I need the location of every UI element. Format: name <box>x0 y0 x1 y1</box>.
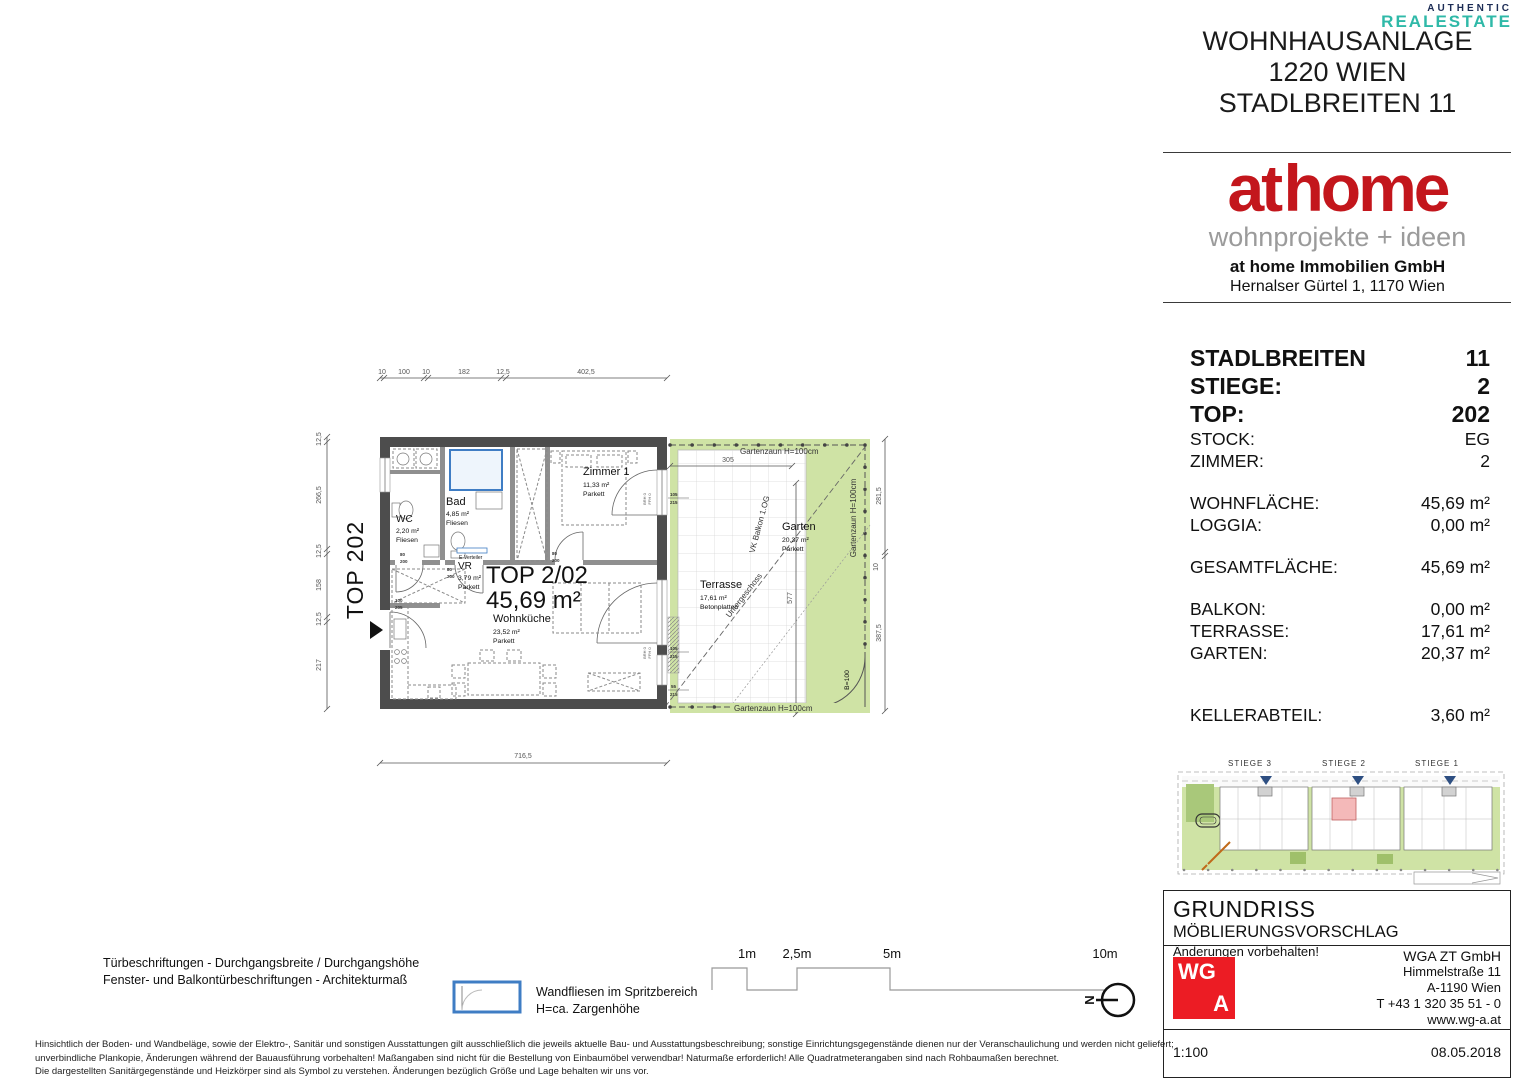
wga-city: A-1190 Wien <box>1377 980 1501 996</box>
z1-door-h: 200 <box>552 558 560 563</box>
legend-door-note1: Türbeschriftungen - Durchgangsbreite / D… <box>103 955 419 972</box>
shower <box>450 450 502 490</box>
wc-door-h: 200 <box>400 559 408 564</box>
win3-h: 215 <box>670 692 678 697</box>
room-wc-area: 2,20 m² <box>396 528 420 535</box>
unit-tag: TOP 202 <box>342 521 368 619</box>
info-value: 11 <box>1466 345 1490 372</box>
athome-company: at home Immobilien GmbH <box>1163 257 1512 277</box>
plan-sheet: 10 100 10 182 12,5 402,5 12,5 266,5 12,5… <box>0 0 1527 1080</box>
siteplan-highlighted-unit <box>1332 798 1356 820</box>
dim-left-4: 12,5 <box>316 612 323 626</box>
room-bad-area: 4,85 m² <box>446 511 470 518</box>
info-value: 0,00 m² <box>1431 515 1490 536</box>
info-value: 0,00 m² <box>1431 599 1490 620</box>
info-value: 202 <box>1452 401 1490 428</box>
titleblock-header: GRUNDRISS MÖBLIERUNGSVORSCHLAG Änderunge… <box>1164 891 1510 946</box>
win1-w: 105 <box>670 492 678 497</box>
info-value: 45,69 m² <box>1421 557 1490 578</box>
info-label: GESAMTFLÄCHE: <box>1190 557 1338 578</box>
info-value: 17,61 m² <box>1421 621 1490 642</box>
info-label: KELLERABTEIL: <box>1190 705 1322 726</box>
terrace-step <box>668 617 679 673</box>
legend-door-notes: Türbeschriftungen - Durchgangsbreite / D… <box>103 955 419 989</box>
info-value: 20,37 m² <box>1421 643 1490 664</box>
fence-label-right: Gartenzaun H=100cm <box>849 478 858 557</box>
scale-5m: 5m <box>883 946 901 961</box>
info-value: 3,60 m² <box>1431 705 1490 726</box>
drawing-date: 08.05.2018 <box>1431 1044 1501 1060</box>
bad-door-w: 80 <box>447 567 453 572</box>
entrance-arrow-icon <box>370 621 383 639</box>
garden-area <box>670 439 870 713</box>
info-label: TERRASSE: <box>1190 621 1289 642</box>
project-title: WOHNHAUSANLAGE 1220 WIEN STADLBREITEN 11 <box>1163 26 1512 119</box>
dim-garden-height: 577 <box>787 592 794 604</box>
legend-tile-note1: Wandfliesen im Spritzbereich <box>536 984 697 1001</box>
brand-block: at home wohnprojekte + ideen at home Imm… <box>1163 156 1512 296</box>
wga-street: Himmelstraße 11 <box>1377 964 1501 980</box>
room-zimmer1-floor: Parkett <box>583 491 605 498</box>
dim-left-0: 12,5 <box>316 432 323 446</box>
info-row: STOCK:EG <box>1190 429 1490 451</box>
wga-phone: T +43 1 320 35 51 - 0 <box>1377 996 1501 1012</box>
titleblock-subtitle: MÖBLIERUNGSVORSCHLAG <box>1173 923 1399 941</box>
dim-top-4: 12,5 <box>496 369 510 376</box>
wga-logo-top: WG <box>1178 959 1216 985</box>
wga-company: WGA ZT GmbH <box>1377 948 1501 964</box>
dim-left-1: 266,5 <box>316 486 323 504</box>
legend-tile-notes: Wandfliesen im Spritzbereich H=ca. Zarge… <box>536 984 697 1018</box>
project-title-line2: 1220 WIEN <box>1163 57 1512 88</box>
dim-right-2: 387,5 <box>876 624 883 642</box>
dim-bottom: 716,5 <box>514 753 532 760</box>
room-bad-floor: Fliesen <box>446 520 468 527</box>
fence-label-bottom: Gartenzaun H=100cm <box>734 704 813 713</box>
info-label: ZIMMER: <box>1190 451 1264 472</box>
room-vr-name: VR <box>458 561 472 572</box>
athome-address: Hernalser Gürtel 1, 1170 Wien <box>1163 277 1512 296</box>
room-wc-floor: Fliesen <box>396 537 418 544</box>
wga-logo: WG A <box>1173 957 1235 1019</box>
watermark: AUTHENTIC REALESTATE <box>1290 2 1512 28</box>
info-row: KELLERABTEIL:3,60 m² <box>1190 705 1490 727</box>
unit-info-panel: STADLBREITEN11 STIEGE:2 TOP:202 STOCK:EG… <box>1190 345 1490 727</box>
dim-left-3: 158 <box>316 579 323 591</box>
info-label: STADLBREITEN <box>1190 345 1366 372</box>
floor-plan: 10 100 10 182 12,5 402,5 12,5 266,5 12,5… <box>300 355 930 785</box>
room-terrasse-area: 17,61 m² <box>700 595 728 602</box>
room-kueche-name: Wohnküche <box>493 613 551 625</box>
disclaimer-line2: unverbindliche Plankopie, Änderungen wäh… <box>35 1052 1155 1066</box>
title-block: GRUNDRISS MÖBLIERUNGSVORSCHLAG Änderunge… <box>1163 890 1511 1078</box>
bad-door-h: 200 <box>447 574 455 579</box>
info-value: 2 <box>1477 373 1490 400</box>
titleblock-meta-row: 1:100 08.05.2018 <box>1164 1030 1510 1074</box>
dim-left-2: 12,5 <box>316 544 323 558</box>
info-label: LOGGIA: <box>1190 515 1262 536</box>
info-label: BALKON: <box>1190 599 1266 620</box>
dim-top-0: 10 <box>378 369 386 376</box>
dim-left-5: 217 <box>316 659 323 671</box>
gate-label: B=100 <box>844 670 851 690</box>
win2-w: 105 <box>670 646 678 651</box>
dim-garden-width: 305 <box>722 457 734 464</box>
scale-1m: 1m <box>738 946 756 961</box>
win1-h: 215 <box>670 500 678 505</box>
room-garten-area: 20,37 m² <box>782 537 810 544</box>
win2-ffh: FFH 0 <box>647 647 652 659</box>
wga-logo-bottom: A <box>1213 991 1229 1017</box>
z1-door-w: 80 <box>552 551 558 556</box>
legend-door-note2: Fenster- und Balkontürbeschriftungen - A… <box>103 972 419 989</box>
info-row: GESAMTFLÄCHE:45,69 m² <box>1190 557 1490 579</box>
legend-tile-note2: H=ca. Zargenhöhe <box>536 1001 697 1018</box>
info-row: TOP:202 <box>1190 401 1490 429</box>
win2-h: 215 <box>670 654 678 659</box>
room-terrasse-name: Terrasse <box>700 579 742 591</box>
win1-ffh: FFH 0 <box>647 493 652 505</box>
info-value: EG <box>1465 429 1490 450</box>
site-plan: STIEGE 3 STIEGE 2 STIEGE 1 <box>1172 756 1512 888</box>
dim-right-0: 281,5 <box>876 487 883 505</box>
drawing-scale: 1:100 <box>1173 1044 1208 1060</box>
room-vr-area: 3,79 m² <box>458 575 482 582</box>
entry-door-w: 100 <box>395 598 403 603</box>
project-title-line1: WOHNHAUSANLAGE <box>1163 26 1512 57</box>
wc-door-w: 80 <box>400 552 406 557</box>
info-row: GARTEN:20,37 m² <box>1190 643 1490 665</box>
athome-tagline: wohnprojekte + ideen <box>1163 222 1512 252</box>
siteplan-stiege2: STIEGE 2 <box>1322 759 1366 768</box>
north-letter: N <box>1082 995 1097 1004</box>
project-title-line3: STADLBREITEN 11 <box>1163 88 1512 119</box>
win3-w: 55 <box>671 684 677 689</box>
info-value: 45,69 m² <box>1421 493 1490 514</box>
info-value: 2 <box>1480 451 1490 472</box>
dim-top-3: 182 <box>458 369 470 376</box>
tile-legend-icon <box>452 980 524 1016</box>
room-bad-name: Bad <box>446 496 466 508</box>
siteplan-stiege3: STIEGE 3 <box>1228 759 1272 768</box>
disclaimer-line3: Die dargestellten Sanitärgegenstände und… <box>35 1065 1155 1079</box>
dim-right-1: 10 <box>873 563 880 571</box>
info-row: WOHNFLÄCHE:45,69 m² <box>1190 493 1490 515</box>
scale-bar: 1m 2,5m 5m 10m N <box>700 940 1150 1030</box>
unit-area: 45,69 m² <box>486 587 581 614</box>
wga-address: WGA ZT GmbH Himmelstraße 11 A-1190 Wien … <box>1377 948 1501 1028</box>
room-zimmer1-area: 11,33 m² <box>583 482 610 489</box>
info-label: TOP: <box>1190 401 1245 428</box>
room-zimmer1-name: Zimmer 1 <box>583 466 629 478</box>
dim-top-5: 402,5 <box>577 369 595 376</box>
info-row: ZIMMER:2 <box>1190 451 1490 473</box>
disclaimer: Hinsichtlich der Boden- und Wandbeläge, … <box>35 1038 1155 1079</box>
scale-10m: 10m <box>1092 946 1117 961</box>
disclaimer-line1: Hinsichtlich der Boden- und Wandbeläge, … <box>35 1038 1155 1052</box>
info-row: TERRASSE:17,61 m² <box>1190 621 1490 643</box>
room-garten-floor: Parkett <box>782 546 804 553</box>
entry-door-h: 205 <box>395 605 403 610</box>
room-wc-name: WC <box>396 514 413 525</box>
room-vr-floor: Parkett <box>458 584 480 591</box>
athome-logo: at home <box>1163 156 1512 220</box>
info-row: BALKON:0,00 m² <box>1190 599 1490 621</box>
dim-top-1: 100 <box>398 369 410 376</box>
info-row: LOGGIA:0,00 m² <box>1190 515 1490 537</box>
titleblock-company-row: WG A WGA ZT GmbH Himmelstraße 11 A-1190 … <box>1164 946 1510 1030</box>
info-label: GARTEN: <box>1190 643 1267 664</box>
divider <box>1163 302 1511 303</box>
room-kueche-area: 23,52 m² <box>493 629 521 636</box>
unit-name: TOP 2/02 <box>486 562 588 589</box>
dim-top-2: 10 <box>422 369 430 376</box>
info-row: STADLBREITEN11 <box>1190 345 1490 373</box>
info-label: WOHNFLÄCHE: <box>1190 493 1319 514</box>
info-label: STIEGE: <box>1190 373 1282 400</box>
room-kueche-floor: Parkett <box>493 638 515 645</box>
info-row: STIEGE:2 <box>1190 373 1490 401</box>
siteplan-stiege1: STIEGE 1 <box>1415 759 1459 768</box>
wga-web: www.wg-a.at <box>1377 1012 1501 1028</box>
north-icon: N <box>1082 984 1134 1016</box>
room-garten-name: Garten <box>782 521 816 533</box>
titleblock-title: GRUNDRISS <box>1173 896 1316 922</box>
scale-2-5m: 2,5m <box>783 946 812 961</box>
info-label: STOCK: <box>1190 429 1255 450</box>
fence-label-top: Gartenzaun H=100cm <box>740 447 819 456</box>
